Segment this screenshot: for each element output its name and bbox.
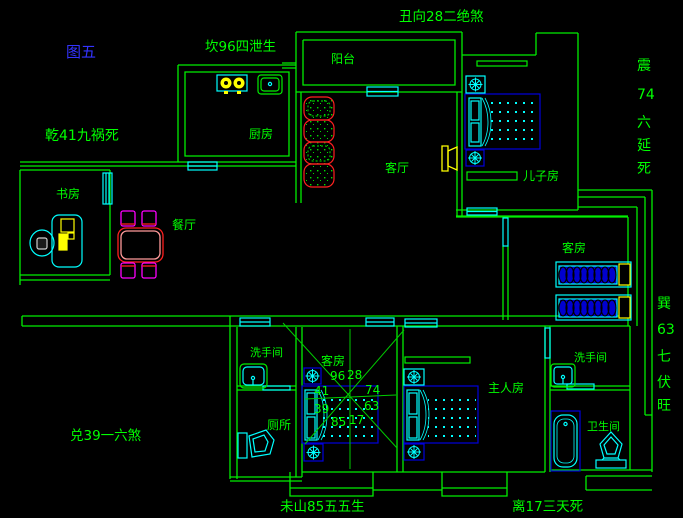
compass-n: 96 bbox=[330, 369, 345, 383]
annotation-southwest: 未山85五五生 bbox=[280, 499, 365, 515]
compass-w: 39 bbox=[314, 402, 329, 416]
room-label-study: 书房 bbox=[56, 186, 80, 201]
room-label-dining: 餐厅 bbox=[172, 217, 196, 232]
figure-label: 图五 bbox=[66, 43, 96, 61]
svg-text:63: 63 bbox=[657, 322, 675, 338]
compass-se: 63 bbox=[364, 399, 379, 413]
floorplan-canvas[interactable]: 图五 坎96四泄生 丑向28二绝煞 乾41九祸死 兑39一六煞 未山85五五生 … bbox=[0, 0, 683, 518]
annotation-west: 兑39一六煞 bbox=[70, 428, 142, 444]
compass-ne: 28 bbox=[347, 368, 362, 382]
room-label-balcony: 阳台 bbox=[331, 51, 355, 66]
svg-text:六: 六 bbox=[637, 115, 651, 131]
annotation-north: 坎96四泄生 bbox=[205, 39, 276, 55]
sink-washroom-east bbox=[551, 364, 575, 387]
annotation-south: 离17三天死 bbox=[512, 498, 583, 515]
room-label-living: 客厅 bbox=[385, 160, 409, 175]
room-label-master: 主人房 bbox=[488, 380, 524, 395]
floorplan-drawing: 图五 坎96四泄生 丑向28二绝煞 乾41九祸死 兑39一六煞 未山85五五生 … bbox=[0, 0, 683, 518]
room-label-washroom-west: 洗手间 bbox=[250, 345, 283, 359]
room-label-sons-room: 儿子房 bbox=[523, 168, 559, 183]
room-label-kitchen: 厨房 bbox=[249, 126, 273, 141]
room-label-bathroom: 卫生间 bbox=[587, 419, 620, 433]
svg-text:死: 死 bbox=[637, 161, 651, 177]
annotation-northwest: 乾41九祸死 bbox=[45, 128, 119, 144]
twin-bed-2 bbox=[556, 295, 631, 320]
svg-text:74: 74 bbox=[637, 87, 655, 103]
compass-nw: 41 bbox=[314, 384, 329, 398]
svg-text:七: 七 bbox=[657, 349, 671, 365]
svg-text:伏: 伏 bbox=[657, 375, 671, 391]
room-label-toilet: 厕所 bbox=[267, 418, 291, 432]
compass-sw: 85 bbox=[331, 415, 346, 429]
room-label-guest-east: 客房 bbox=[562, 240, 586, 255]
annotation-northeast: 丑向28二绝煞 bbox=[399, 9, 484, 25]
svg-text:震: 震 bbox=[637, 58, 651, 74]
svg-text:延: 延 bbox=[637, 138, 651, 154]
svg-text:旺: 旺 bbox=[657, 398, 671, 414]
room-label-guest-center: 客房 bbox=[321, 353, 345, 368]
twin-bed-1 bbox=[556, 262, 631, 287]
compass-s: 17 bbox=[349, 413, 364, 427]
room-label-washroom-east: 洗手间 bbox=[574, 350, 607, 364]
compass-e: 74 bbox=[365, 383, 380, 397]
svg-text:巽: 巽 bbox=[657, 296, 671, 312]
